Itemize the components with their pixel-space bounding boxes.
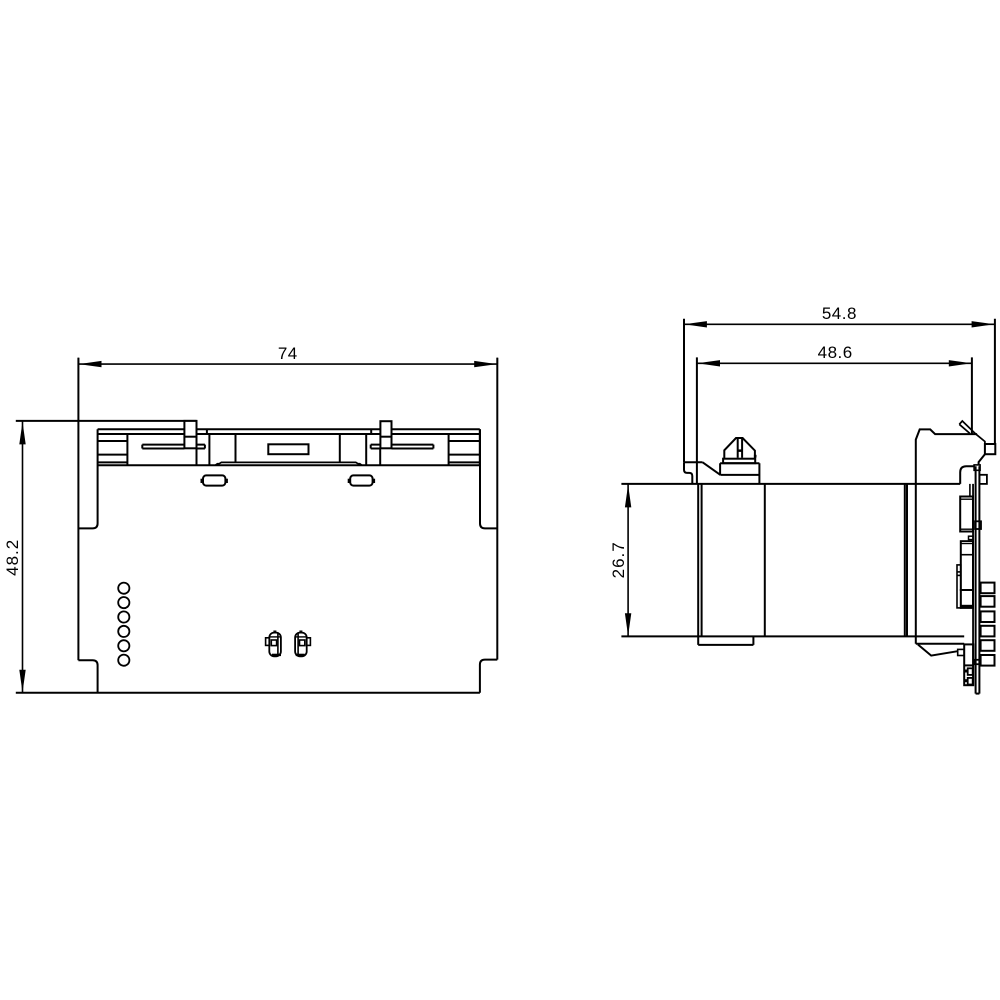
svg-text:48.6: 48.6 xyxy=(818,343,853,362)
svg-text:74: 74 xyxy=(278,344,298,363)
svg-text:48.2: 48.2 xyxy=(3,539,22,576)
svg-text:26.7: 26.7 xyxy=(609,541,628,578)
svg-text:54.8: 54.8 xyxy=(822,304,857,323)
